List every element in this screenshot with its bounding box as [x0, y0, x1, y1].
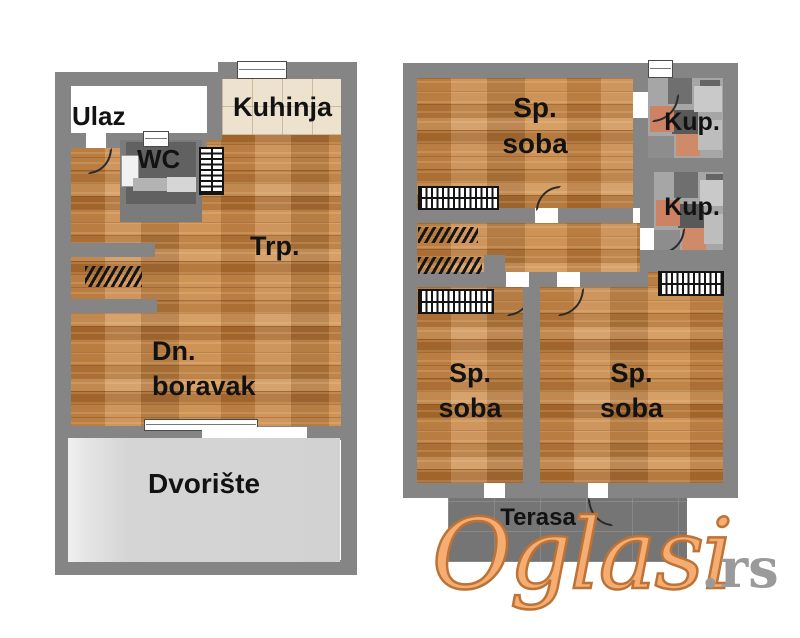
bathroom-2-door-gap: [640, 228, 654, 252]
radiator-icon-bedroom-top: [418, 186, 499, 210]
kitchen-window-icon: [237, 61, 287, 79]
living-room-label: Dn. boravak: [152, 334, 256, 404]
terrace-door-gap-1: [484, 483, 505, 498]
watermark-suffix: .rs: [701, 541, 779, 595]
entrance-door-gap: [86, 133, 106, 148]
upper-wall-bottom: [403, 483, 738, 498]
bathroom-1-label: Kup.: [648, 106, 736, 139]
bedroom-left-label: Sp. soba: [417, 356, 523, 426]
wc-fixture: [133, 178, 167, 191]
bedroom-top-label-line1: Sp.: [455, 90, 615, 126]
wall-bedroom-partition: [523, 287, 540, 483]
bedroom-left-label-line1: Sp.: [417, 356, 523, 391]
stairs-hatch-icon: [85, 266, 142, 287]
wall-bath2-bottom: [640, 250, 723, 272]
bedroom-left-door-gap: [506, 272, 529, 287]
watermark-brand: Oglasi: [432, 506, 731, 603]
radiator-icon-bedroom-right: [658, 271, 724, 296]
bedroom-right-label: Sp. soba: [540, 356, 723, 426]
bedroom-right-label-line2: soba: [540, 391, 723, 426]
stairs-hatch-icon-upper-1: [418, 227, 478, 243]
bedroom-top-label: Sp. soba: [455, 90, 615, 163]
bedroom-left-label-line2: soba: [417, 391, 523, 426]
wall-bedroom-top-bottom: [403, 208, 633, 223]
living-room-label-line2: boravak: [152, 369, 256, 404]
dining-label: Trp.: [250, 229, 300, 264]
wall-niche-top: [57, 243, 155, 257]
wall-entrance-kitchen: [207, 72, 222, 140]
bedroom-right-door-gap: [557, 272, 580, 287]
yard-label: Dvorište: [68, 466, 340, 502]
radiator-icon: [199, 147, 224, 195]
stairs-hatch-icon-upper-2: [418, 257, 482, 274]
bedroom-top-label-line2: soba: [455, 126, 615, 162]
radiator-icon-bedroom-left: [418, 289, 494, 314]
kitchen-label: Kuhinja: [222, 90, 343, 125]
wc-label: WC: [137, 143, 180, 177]
wall-bottom: [55, 560, 357, 575]
upper-wall-top: [403, 63, 738, 78]
floorplan-canvas: Ulaz Kuhinja WC Trp. Dn. boravak Dvorišt…: [0, 0, 800, 638]
bathroom-1-door-gap: [633, 92, 648, 118]
wall-bath-divider: [640, 158, 723, 172]
terrace-door-gap-2: [588, 483, 608, 498]
wall-right: [341, 62, 357, 575]
living-room-label-line1: Dn.: [152, 334, 256, 369]
bathroom-window-icon: [648, 60, 673, 78]
wall-top-left: [55, 72, 222, 86]
bedroom-right-label-line1: Sp.: [540, 356, 723, 391]
bathroom-2-label: Kup.: [648, 191, 736, 224]
wall-stub: [484, 255, 505, 275]
entrance-label: Ulaz: [72, 100, 125, 134]
wc-fixture-2: [167, 177, 196, 192]
wall-niche-bottom: [57, 299, 157, 313]
